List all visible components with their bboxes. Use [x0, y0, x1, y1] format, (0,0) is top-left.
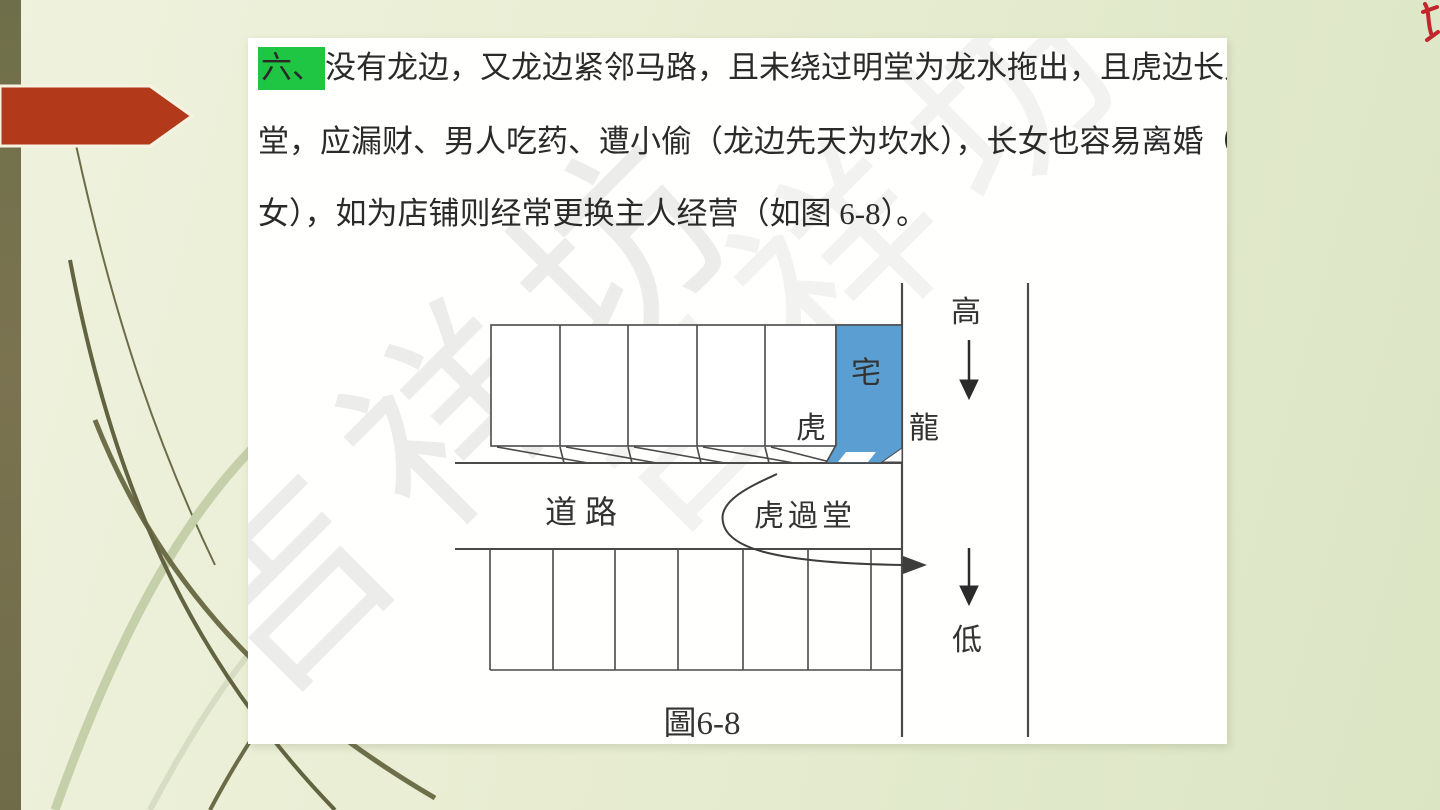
label-high: 高 — [951, 296, 981, 329]
paragraph-line-3: 女），如为店铺则经常更换主人经营（如图 6-8）。 — [258, 192, 1220, 238]
red-watermark-fragment-icon — [1421, 2, 1440, 46]
house-marker — [826, 325, 902, 463]
label-dragon: 龍 — [909, 412, 939, 445]
highlighted-list-marker: 六、 — [258, 47, 325, 90]
label-house: 宅 — [851, 357, 881, 390]
content-panel: 吉祥坊 吉祥坊 六、没有龙边，又龙边紧邻马路，且未绕过明堂为龙水拖出，且虎边长又… — [248, 38, 1227, 744]
slide: 吉祥坊 吉祥坊 六、没有龙边，又龙边紧邻马路，且未绕过明堂为龙水拖出，且虎边长又… — [0, 0, 1440, 810]
label-road: 道路 — [545, 494, 625, 530]
paragraph-line-1-text: 没有龙边，又龙边紧邻马路，且未绕过明堂为龙水拖出，且虎边长又虎过 — [325, 50, 1227, 85]
paragraph-line-2: 堂，应漏财、男人吃药、遭小偷（龙边先天为坎水），长女也容易离婚（低论 — [258, 120, 1220, 166]
curved-arrow-head-icon — [903, 556, 927, 574]
slope-arrows — [960, 340, 978, 605]
label-low: 低 — [952, 624, 982, 657]
figure-caption: 圖6-8 — [664, 706, 741, 742]
accent-arrow — [0, 78, 210, 154]
down-arrow-icon — [960, 380, 978, 399]
label-tiger-passes-hall: 虎過堂 — [754, 500, 856, 533]
down-arrow-icon — [960, 586, 978, 605]
label-tiger: 虎 — [796, 412, 826, 445]
paragraph-line-1: 六、没有龙边，又龙边紧邻马路，且未绕过明堂为龙水拖出，且虎边长又虎过 — [258, 46, 1220, 92]
figure-6-8-diagram: 高 宅 虎 龍 道路 虎過堂 低 圖6-8 — [430, 260, 1070, 744]
